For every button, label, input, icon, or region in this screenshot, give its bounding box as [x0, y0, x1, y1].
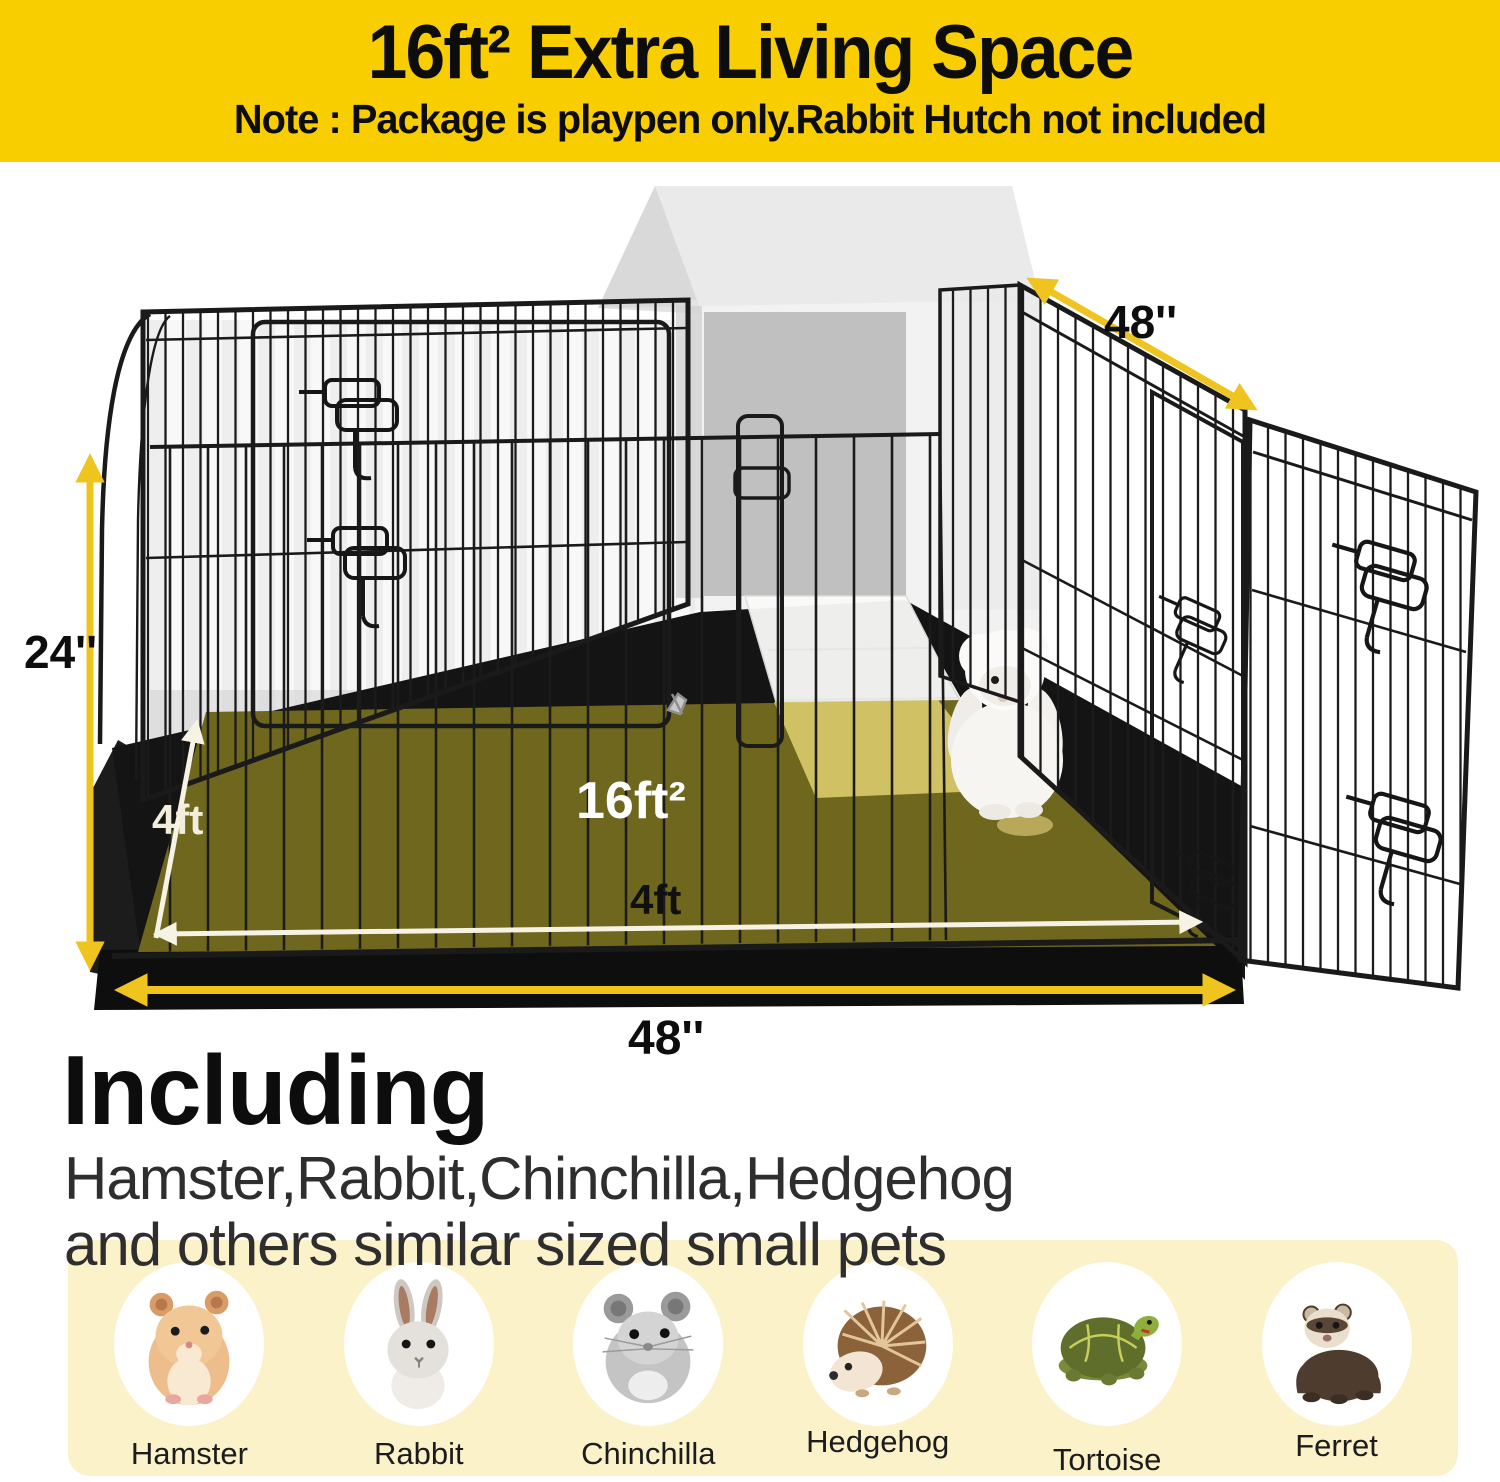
including-line2: and others similar sized small pets — [64, 1212, 1014, 1278]
including-section: Including Hamster,Rabbit,Chinchilla,Hedg… — [62, 1040, 1014, 1278]
hedgehog-image — [803, 1262, 953, 1426]
ferret-image — [1262, 1262, 1412, 1426]
open-door-panel — [1240, 420, 1476, 988]
pet-label: Hamster — [131, 1436, 248, 1472]
including-heading: Including — [62, 1040, 1014, 1140]
chinchilla-image — [573, 1262, 723, 1426]
pet-label: Rabbit — [374, 1436, 464, 1472]
floor-depth-label: 4ft — [152, 796, 203, 843]
banner: 16ft² Extra Living Space Note : Package … — [0, 0, 1500, 162]
pet-item-ferret: Ferret — [1229, 1240, 1445, 1472]
side-width-label: 48'' — [1104, 296, 1177, 348]
banner-note: Note : Package is playpen only.Rabbit Hu… — [23, 96, 1478, 142]
area-label: 16ft² — [576, 772, 686, 830]
pet-label: Tortoise — [1053, 1442, 1162, 1478]
pet-label: Ferret — [1295, 1428, 1378, 1464]
hamster-image — [114, 1262, 264, 1426]
product-infographic: 24'' 48'' 48'' 4ft 4ft 16ft² 16ft² Extra… — [0, 0, 1500, 1482]
including-line1: Hamster,Rabbit,Chinchilla,Hedgehog — [64, 1146, 1014, 1212]
rabbit-photo-image — [344, 1262, 494, 1426]
floor-width-label: 4ft — [630, 876, 681, 923]
pet-label: Chinchilla — [581, 1436, 715, 1472]
height-label: 24'' — [24, 626, 97, 678]
rear-filler-panel — [940, 285, 1020, 702]
tortoise-image — [1032, 1262, 1182, 1426]
pet-label: Hedgehog — [806, 1424, 949, 1460]
front-panel — [144, 434, 946, 952]
banner-title: 16ft² Extra Living Space — [45, 0, 1455, 96]
pet-item-tortoise: Tortoise — [999, 1240, 1215, 1472]
